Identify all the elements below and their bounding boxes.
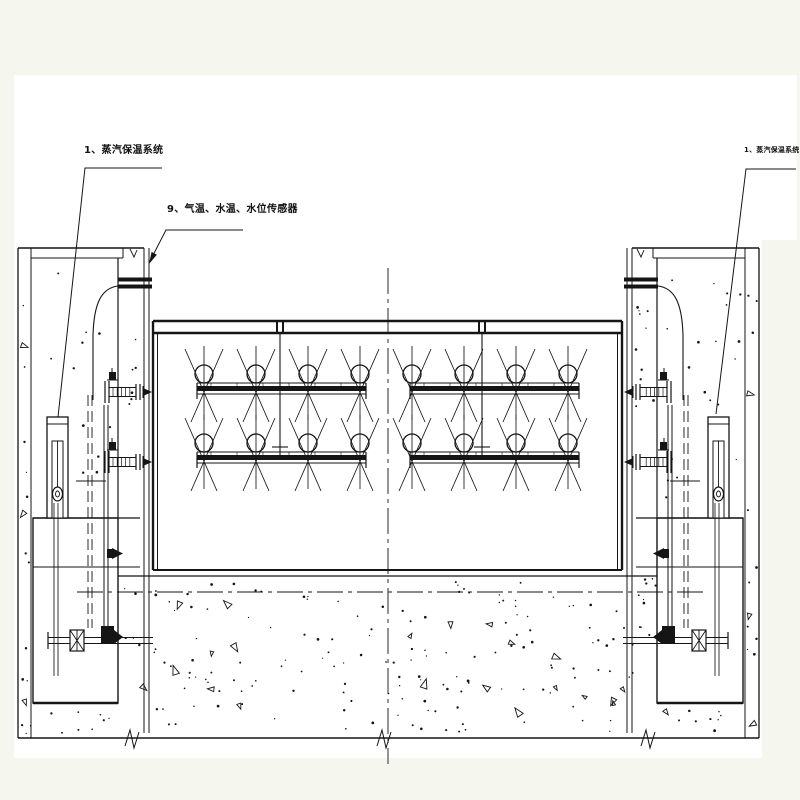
engineering-drawing-page: 1、蒸汽保温系统 9、气温、水温、水位传感器 1、蒸汽保温系统: [0, 0, 800, 800]
label-steam-system-right: 1、蒸汽保温系统: [744, 145, 799, 154]
label-sensors: 9、气温、水温、水位传感器: [167, 202, 299, 215]
label-steam-system-left: 1、蒸汽保温系统: [84, 143, 163, 156]
page-margin-right: [762, 240, 800, 758]
gate-section-drawing: 1、蒸汽保温系统 9、气温、水温、水位传感器 1、蒸汽保温系统: [0, 0, 800, 800]
